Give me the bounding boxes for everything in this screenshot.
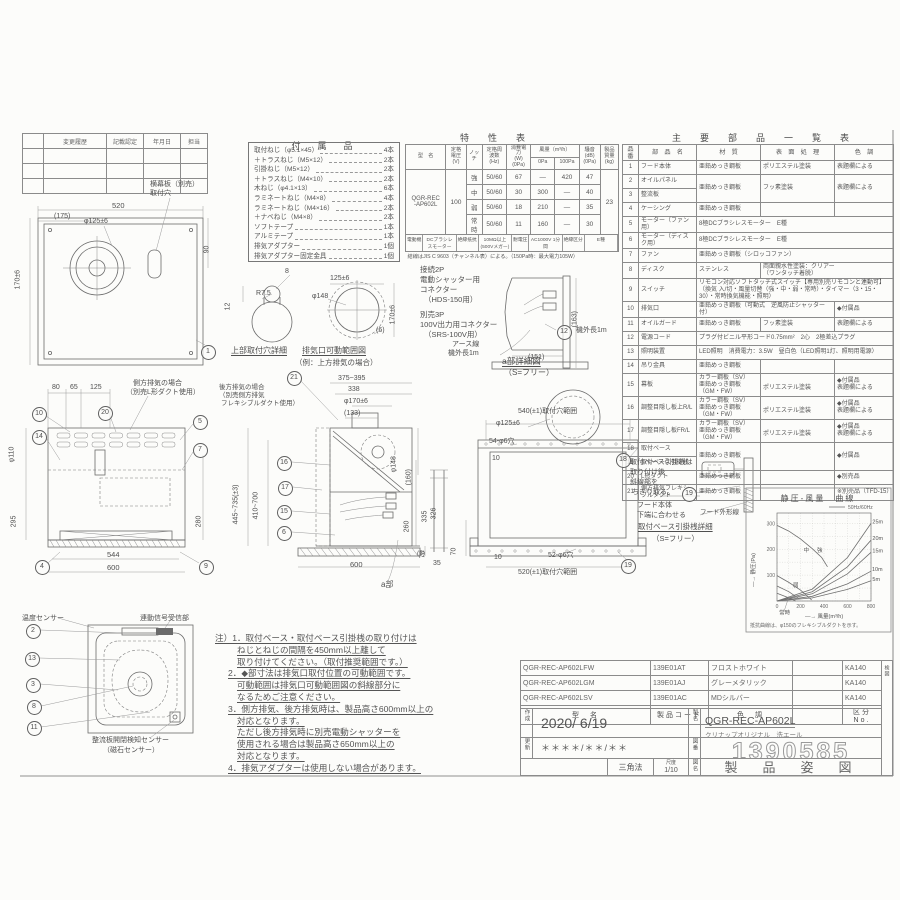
balloon-1: 1 [201, 345, 216, 360]
accessory-item: ラミネートねじ（M4×16）2本 [254, 204, 394, 214]
accessory-item: ＋ナベねじ（M4×8）2本 [254, 213, 394, 223]
note-line: 4．排気アダプターは使用しない場合があります。 [228, 763, 433, 775]
dim-label: 170±6 [390, 305, 397, 324]
product-name: QGR-REC-AP602L [705, 715, 795, 728]
rev-header: 担当 [181, 134, 208, 149]
parts-cell: LED照明 消費電力：3.5W 昼白色（LED照明1灯、照明用電源） [697, 346, 894, 360]
spec-footer-label: 耐電圧 [512, 235, 529, 251]
spec-header: 定格電圧 (V) [446, 145, 466, 170]
balloon-14: 14 [32, 430, 47, 445]
dim-label: (133) [344, 410, 360, 417]
parts-row: 15幕板カラー鋼板（SV） 亜鉛めっき鋼板（GM・FW） ポリエステル塗装◆付属… [623, 374, 894, 397]
scale-cell: 尺度1/10 [653, 758, 689, 776]
balloon-13: 13 [25, 652, 40, 667]
parts-table-title: 主 要 部 品 一 覧 表 [672, 131, 854, 144]
dim-label: 375~395 [338, 375, 365, 382]
approval-cell: 検図 [881, 660, 893, 776]
parts-cell: カラー鋼板（SV） 亜鉛めっき鋼板（GM・FW） [697, 397, 761, 420]
parts-row: 14吊り金具亜鉛めっき鋼板 [623, 360, 894, 374]
spec-header: ノッチ [466, 145, 482, 170]
dim-label: (160) [406, 469, 413, 485]
parts-cell [761, 360, 835, 374]
balloon-17: 17 [278, 481, 293, 496]
dim-label: 52-φ6穴 [548, 552, 574, 559]
parts-cell: 吊り金具 [639, 360, 697, 374]
dim-label: 445~735(±3) [233, 485, 240, 525]
parts-row: 11オイルガード亜鉛めっき鋼板フッ素塗装表題欄による [623, 318, 894, 332]
dim-label: ちぎり取る。 [632, 489, 674, 496]
accessory-item: ＋トラスねじ（M5×12）2本 [254, 156, 394, 166]
dim-label: 側方排気の場合 [133, 380, 182, 387]
parts-cell: 調整目隠し板上R/L [639, 397, 697, 420]
parts-cell: フッ素塗装 [761, 175, 835, 203]
dim-label: 520(±1)取付穴範囲 [518, 569, 577, 576]
dim-label: 600 [350, 561, 363, 569]
installation-notes: 注）1．取付ベース・取付ベース引掛桟の取り付けはねじとねじの間隔を450mm以上… [215, 633, 433, 775]
dim-label: 295 [11, 516, 18, 528]
dim-label: コネクター [420, 286, 457, 294]
parts-cell: 12 [623, 332, 639, 346]
dim-label: 斜線部を [630, 479, 658, 486]
rev-empty-cell [44, 149, 107, 164]
projection-method: 三角法 [607, 758, 654, 776]
dim-label: 12 [225, 303, 232, 311]
dim-label: (175) [54, 213, 70, 220]
parts-cell: オイルガード [639, 318, 697, 332]
parts-cell: ポリエステル塗装 [761, 374, 835, 397]
accessory-item: 引掛ねじ（M5×12）2本 [254, 165, 394, 175]
parts-cell [761, 443, 835, 471]
accessory-item: 排気アダプター固定金具1個 [254, 252, 394, 262]
parts-row: 4ケーシング亜鉛めっき鋼板 [623, 203, 894, 217]
svg-text:5m: 5m [872, 577, 880, 583]
svg-text:50Hz/60Hz: 50Hz/60Hz [848, 505, 873, 511]
dim-label: 機外長1m [448, 350, 479, 357]
dim-label: 520 [112, 202, 125, 210]
dim-label: 65 [70, 384, 78, 391]
parts-cell: 11 [623, 318, 639, 332]
balloon-10: 10 [32, 407, 47, 422]
balloon-15: 15 [277, 505, 292, 520]
dim-label: 8 [285, 268, 289, 275]
rev-empty-cell [23, 179, 44, 194]
parts-row: 13照明装置LED照明 消費電力：3.5W 昼白色（LED照明1灯、照明用電源） [623, 346, 894, 360]
parts-row: 6モーター（ディスク用）8極DCブラシレスモーター E種 [623, 233, 894, 249]
dim-label: （別売L形ダクト使用） [126, 389, 200, 396]
svg-text:―→ 静圧(Pa): ―→ 静圧(Pa) [749, 553, 757, 587]
parts-header: 材 質 [697, 145, 761, 161]
dim-label: 整流板開閉検知センサー [92, 737, 169, 744]
dim-label: 取付ベース引掛桟詳細 [638, 523, 713, 531]
parts-cell: 6 [623, 233, 639, 249]
dim-label: φ148 [312, 293, 328, 300]
parts-cell [835, 203, 894, 217]
spec-table-grid: 型 名定格電圧 (V)ノッチ定格周波数 (Hz)消費電力 (W) (0Pa)風量… [405, 144, 619, 260]
parts-cell: リモコン対応ソフトタッチ式スイッチ【専用別売リモコンと連動可】 （換気 入/切・… [697, 279, 894, 302]
spec-note: 結線はJIS C 9603（チャンネル表）による。（150Pa時：最大電力105… [406, 252, 619, 261]
spec-header: 型 名 [406, 145, 446, 170]
dim-label: 544 [107, 551, 120, 559]
dim-label: 10 [494, 554, 502, 561]
svg-text:静圧-風量 曲線: 静圧-風量 曲線 [781, 493, 856, 503]
dim-label: R7.5 [256, 290, 271, 297]
parts-cell: 13 [623, 346, 639, 360]
balloon-19: 19 [682, 487, 697, 502]
parts-cell: 3 [623, 189, 639, 203]
parts-cell: 表題欄による [835, 318, 894, 332]
parts-row: 18取付ベース亜鉛めっき鋼板◆付属品 [623, 443, 894, 457]
svg-text:抵抗曲線は、φ150のフレキシブルダクトを示す。: 抵抗曲線は、φ150のフレキシブルダクトを示す。 [750, 622, 861, 629]
parts-cell: カラー鋼板（SV） 亜鉛めっき鋼板（GM・FW） [697, 420, 761, 443]
balloon-2: 2 [26, 624, 41, 639]
spec-footer-label: 電動機 [406, 235, 423, 251]
parts-header: 部 品 名 [639, 145, 697, 161]
accessory-item: 木ねじ（φ4.1×13）6本 [254, 184, 394, 194]
parts-cell: ◆付属品 表題欄による [835, 374, 894, 397]
dim-label: (6) [376, 327, 385, 334]
parts-cell: 亜鉛めっき鋼板 [697, 318, 761, 332]
parts-cell: 16 [623, 397, 639, 420]
accessory-item: ＋トラスねじ（M4×10）2本 [254, 175, 394, 185]
model-row: QGR-REC-AP602LFW139E01ATフロストホワイトKA140 [521, 661, 882, 676]
svg-text:中: 中 [803, 546, 809, 554]
dim-label: φ125±6 [84, 218, 108, 225]
balloon-9: 9 [199, 560, 214, 575]
parts-table: 品番部 品 名材 質表 面 処 理色 調1フード本体亜鉛めっき鋼板ポリエステル塗… [622, 144, 893, 501]
balloon-12: 12 [557, 325, 572, 340]
dim-label: 排気口可動範囲図 [302, 347, 366, 355]
parts-cell: スイッチ [639, 279, 697, 302]
note-line: 可動範囲は排気口可動範囲図の斜線部分に [237, 680, 433, 692]
balloon-5: 5 [193, 415, 208, 430]
parts-cell: ファン [639, 249, 697, 263]
dim-label: （S=フリー） [652, 535, 699, 543]
dim-label: （例：上方排気の場合） [295, 359, 378, 367]
parts-cell: ◆付属品 表題欄による [835, 420, 894, 443]
dim-label: フード本体 [637, 502, 672, 509]
dim-label: 下端に合わせる [637, 512, 686, 519]
rev-empty-cell [107, 179, 144, 194]
note-line: 対応となります。 [237, 751, 433, 763]
svg-text:300: 300 [767, 521, 776, 527]
parts-header: 色 調 [835, 145, 894, 161]
spec-row: QGR-REC -AP602L100強50/6067—4204723 [406, 170, 619, 185]
rev-empty-cell [23, 149, 44, 164]
parts-cell: 両面親水性塗装：クリアー （ワンタッチ着脱） [761, 263, 894, 279]
rev-empty-cell [44, 179, 107, 194]
parts-row: 12電源コードプラグ付ビニル平形コード0.75mm² 2心 2極差込プラグ [623, 332, 894, 346]
parts-row: 16調整目隠し板上R/Lカラー鋼板（SV） 亜鉛めっき鋼板（GM・FW） ポリエ… [623, 397, 894, 420]
svg-text:10m: 10m [872, 567, 883, 573]
parts-cell: 9 [623, 279, 639, 302]
parts-cell: 2 [623, 175, 639, 189]
svg-text:600: 600 [843, 604, 852, 610]
dim-label: 326 [431, 508, 438, 520]
spec-footer-label: 絶縁区分 [563, 235, 585, 251]
parts-cell: 整流板 [639, 189, 697, 203]
svg-text:弱: 弱 [793, 582, 799, 589]
dim-label: 170±6 [15, 270, 22, 289]
parts-cell [761, 471, 835, 485]
created-date: 2020/ 6/19 [532, 708, 689, 738]
parts-cell: 亜鉛めっき鋼板 [697, 471, 761, 485]
rev-header: 変更履歴 [44, 134, 107, 149]
dim-label: 80 [52, 384, 60, 391]
parts-cell: プラグ付ビニル平形コード0.75mm² 2心 2極差込プラグ [697, 332, 894, 346]
parts-cell: ポリエステル塗装 [761, 397, 835, 420]
dim-label: 温度センサー [22, 615, 64, 622]
note-line: 対応となります。 [237, 716, 433, 728]
svg-text:―→ 風量(m³/h): ―→ 風量(m³/h) [805, 613, 843, 620]
spec-header: 100Pa [555, 157, 579, 170]
svg-text:15m: 15m [872, 548, 883, 554]
parts-cell: 4 [623, 203, 639, 217]
dim-label: 上部取付穴詳細 [231, 347, 287, 355]
spec-footer-value: DCブラシレスモーター [423, 235, 456, 251]
parts-row: 10排気口亜鉛めっき鋼板（可動式 逆風防止シャッター付）◆付属品 [623, 302, 894, 318]
parts-cell: ステンレス [697, 263, 761, 279]
dim-label: 35 [433, 560, 441, 567]
parts-cell: 10 [623, 302, 639, 318]
parts-cell: ディスク [639, 263, 697, 279]
rev-empty-cell [181, 149, 208, 164]
parts-row: 2オイルパネル亜鉛めっき鋼板フッ素塗装表題欄による [623, 175, 894, 189]
svg-text:800: 800 [867, 604, 876, 610]
dim-label: 100V出力用コネクター [420, 321, 497, 329]
parts-cell: フッ素塗装 [761, 318, 835, 332]
dim-label: φ110 [9, 447, 16, 463]
balloon-4: 4 [35, 560, 50, 575]
note-line: なるためご注意ください。 [237, 692, 433, 704]
parts-cell: 8極DCブラシレスモーター E種 [697, 233, 894, 249]
spec-header: 製品質量 (kg) [600, 145, 618, 170]
balloon-3: 3 [26, 678, 41, 693]
accessory-item: 取付ねじ（φ5.1×45）4本 [254, 146, 394, 156]
parts-cell [761, 203, 835, 217]
parts-cell: 調整目隠し板FR/L [639, 420, 697, 443]
parts-cell: 亜鉛めっき鋼板 [697, 175, 761, 203]
svg-text:100: 100 [767, 573, 776, 579]
note-line: 2．◆部寸法は排気口取付位置の可動範囲です。 [228, 668, 433, 680]
rev-header: 年月日 [144, 134, 181, 149]
rev-symbol-col [23, 134, 44, 149]
balloon-18: 18 [616, 453, 631, 468]
dim-label: 338 [348, 386, 360, 393]
dim-label: (163) [572, 311, 579, 327]
parts-cell: 電源コード [639, 332, 697, 346]
svg-text:強: 強 [817, 546, 823, 554]
dim-label: （磁石センサー） [103, 747, 159, 754]
balloon-19: 19 [621, 559, 636, 574]
parts-cell: 取付ベース [639, 443, 697, 457]
note-line: 3．側方排気、後方排気時は、製品高さ600mm以上の [228, 704, 433, 716]
performance-chart: 静圧-風量 曲線50Hz/60Hz0200400600800100200300強… [745, 487, 892, 633]
drawing-sheet: 変更履歴記載認定年月日担当 付 属 品 取付ねじ（φ5.1×45）4本＋トラスね… [0, 0, 900, 900]
rev-empty-cell [181, 164, 208, 179]
rev-empty-cell [44, 164, 107, 179]
parts-cell: ◆付属品 表題欄による [835, 397, 894, 420]
svg-text:0: 0 [776, 604, 779, 610]
dim-label: 280 [196, 516, 203, 528]
parts-cell: 7 [623, 249, 639, 263]
parts-cell: ポリエステル塗装 [761, 161, 835, 175]
spec-header: 騒音 (dB) (0Pa) [579, 145, 600, 170]
accessory-item: ソフトテープ1本 [254, 223, 394, 233]
parts-cell: フード本体 [639, 161, 697, 175]
balloon-20: 20 [98, 406, 113, 421]
parts-cell: カラー鋼板（SV） 亜鉛めっき鋼板（GM・FW） [697, 374, 761, 397]
spec-table-title: 特 性 表 [460, 131, 530, 144]
updated-date: ＊＊＊＊/＊＊/＊＊ [532, 737, 689, 759]
dim-label: φ125±6 [496, 420, 520, 427]
accessories-list: 取付ねじ（φ5.1×45）4本＋トラスねじ（M5×12）2本引掛ねじ（M5×12… [248, 142, 400, 262]
balloon-11: 11 [27, 721, 42, 736]
dim-label: 540(±1)取付穴範囲 [518, 408, 577, 415]
svg-text:200: 200 [767, 547, 776, 553]
dim-label: 横幕板（別売） [150, 181, 199, 188]
svg-text:400: 400 [820, 604, 829, 610]
parts-cell: 亜鉛めっき鋼板 [697, 443, 761, 471]
accessory-item: ラミネートねじ（M4×8）4本 [254, 194, 394, 204]
sheet-title: 製 品 姿 図 [700, 758, 882, 776]
parts-cell: ◆付属品 [835, 443, 894, 471]
spec-footer-value: E種 [585, 235, 618, 251]
parts-cell [835, 360, 894, 374]
parts-cell: ポリエステル塗装 [761, 420, 835, 443]
dim-label: 90 [204, 246, 211, 254]
parts-cell: 排気口 [639, 302, 697, 318]
balloon-7: 7 [193, 443, 208, 458]
parts-cell: 亜鉛めっき鋼板 [697, 360, 761, 374]
note-line: 注）1．取付ベース・取付ベース引掛桟の取り付けは [215, 633, 433, 645]
spec-header: 消費電力 (W) (0Pa) [506, 145, 530, 170]
dim-label: 600 [107, 564, 120, 572]
dim-label: 125±6 [330, 275, 349, 282]
rev-empty-cell [144, 164, 181, 179]
dim-label: 取付ベース引掛桟は [630, 459, 693, 466]
dim-label: φ148 [391, 456, 398, 472]
spec-header: 風量（m³/h） [531, 145, 579, 158]
svg-text:25m: 25m [872, 519, 883, 525]
parts-cell: 幕板 [639, 374, 697, 397]
note-line: 取り付けてください。（取付推奨範囲です。） [237, 657, 433, 669]
dim-label: 連動信号受信部 [140, 615, 189, 622]
dim-label: φ170±6 [344, 398, 368, 405]
dim-label: 125 [90, 384, 102, 391]
parts-table-grid: 品番部 品 名材 質表 面 処 理色 調1フード本体亜鉛めっき鋼板ポリエステル塗… [622, 144, 894, 501]
rev-empty-cell [23, 164, 44, 179]
note-line: ねじとねじの間隔を450mm以上離して [237, 645, 433, 657]
dim-label: フレキシブルダクト使用） [221, 401, 299, 408]
parts-cell: ケーシング [639, 203, 697, 217]
parts-cell: オイルパネル [639, 175, 697, 189]
note-line: 使用される場合は製品高さ650mm以上の [237, 739, 433, 751]
spec-table: 型 名定格電圧 (V)ノッチ定格周波数 (Hz)消費電力 (W) (0Pa)風量… [405, 144, 619, 260]
dim-label: （別売側方排気 [219, 393, 265, 400]
parts-cell: モーター（ファン用） [639, 217, 697, 233]
accessory-item: 排気アダプター1個 [254, 242, 394, 252]
accessory-item: アルミテープ1本 [254, 232, 394, 242]
spec-footer-label: 絶縁抵抗 [457, 235, 479, 251]
dim-label: 別売3P [420, 311, 444, 319]
drawing-number: 1390585 [700, 737, 882, 759]
parts-cell: 14 [623, 360, 639, 374]
svg-text:20m: 20m [872, 536, 883, 542]
parts-row: 8ディスクステンレス両面親水性塗装：クリアー （ワンタッチ着脱） [623, 263, 894, 279]
parts-cell: 5 [623, 217, 639, 233]
svg-text:200: 200 [796, 604, 805, 610]
parts-cell: 15 [623, 374, 639, 397]
spec-header: 定格周波数 (Hz) [482, 145, 506, 170]
note-line: ただし後方排気時に別売電動シャッターを [237, 727, 433, 739]
dim-label: （S=フリー） [504, 369, 554, 377]
parts-cell: 亜鉛めっき鋼板 [697, 203, 761, 217]
dim-label: 70 [451, 548, 458, 556]
product-name-cell: QGR-REC-AP602L クリナップオリジナル 洗エール [700, 708, 882, 738]
dim-label: 機外長1m [576, 327, 607, 334]
spec-footer-value: 10MΩ以上(500Vメガー) [479, 235, 512, 251]
dim-label: a部 [381, 581, 393, 589]
parts-cell: モーター（ディスク用） [639, 233, 697, 249]
model-row: QGR-REC-AP602LGM139E01AJグレーメタリックKA140 [521, 676, 882, 691]
dim-label: 260 [404, 521, 411, 533]
balloon-8: 8 [27, 700, 42, 715]
dim-label: 取り付け後 [630, 469, 665, 476]
parts-cell: 亜鉛めっき鋼板（可動式 逆風防止シャッター付） [697, 302, 835, 318]
parts-cell: 亜鉛めっき鋼板 [697, 161, 761, 175]
spec-header: 0Pa [531, 157, 555, 170]
dim-label: 後方排気の場合 [219, 385, 265, 392]
parts-cell: 照明装置 [639, 346, 697, 360]
rev-header: 記載認定 [107, 134, 144, 149]
parts-row: 5モーター（ファン用）8極DCブラシレスモーター E種 [623, 217, 894, 233]
dim-label: 接続2P [420, 266, 444, 274]
dim-label: a部詳細図 [502, 357, 541, 366]
parts-row: 7ファン亜鉛めっき鋼板（シロッコファン） [623, 249, 894, 263]
dim-label: 335 [422, 511, 429, 523]
dim-label: 10 [492, 455, 500, 462]
dim-label: 410~700 [253, 492, 260, 519]
balloon-21: 21 [287, 371, 302, 386]
dim-label: アース線 [452, 341, 479, 348]
dim-label: 取付穴 [150, 190, 171, 197]
dim-label: 54-φ6穴 [489, 438, 515, 445]
parts-row: 9スイッチリモコン対応ソフトタッチ式スイッチ【専用別売リモコンと連動可】 （換気… [623, 279, 894, 302]
parts-cell: ◆別売品 [835, 471, 894, 485]
model-row: QGR-REC-AP602LSV139E01ACMDシルバーKA140 [521, 691, 882, 706]
parts-cell: 1 [623, 161, 639, 175]
dim-label: 電動シャッター用 [420, 276, 480, 284]
parts-header: 品番 [623, 145, 639, 161]
parts-cell: 亜鉛めっき鋼板（シロッコファン） [697, 249, 894, 263]
parts-cell: 表題欄による [835, 175, 894, 203]
dim-label: フード外形線 [700, 510, 739, 517]
parts-cell: 8極DCブラシレスモーター E種 [697, 217, 894, 233]
parts-header: 表 面 処 理 [761, 145, 835, 161]
parts-cell: 表題欄による [835, 161, 894, 175]
rev-empty-cell [144, 149, 181, 164]
balloon-6: 6 [277, 526, 292, 541]
parts-cell: 17 [623, 420, 639, 443]
rev-empty-cell [107, 164, 144, 179]
balloon-16: 16 [277, 456, 292, 471]
parts-cell: ◆付属品 [835, 302, 894, 318]
dim-label: (5) [417, 551, 425, 558]
spec-footer-value: AC1000V 1分間 [529, 235, 562, 251]
dim-label: （SRS-100V用） [424, 331, 482, 339]
rev-empty-cell [107, 149, 144, 164]
dim-label: （HDS-150用） [424, 296, 477, 304]
